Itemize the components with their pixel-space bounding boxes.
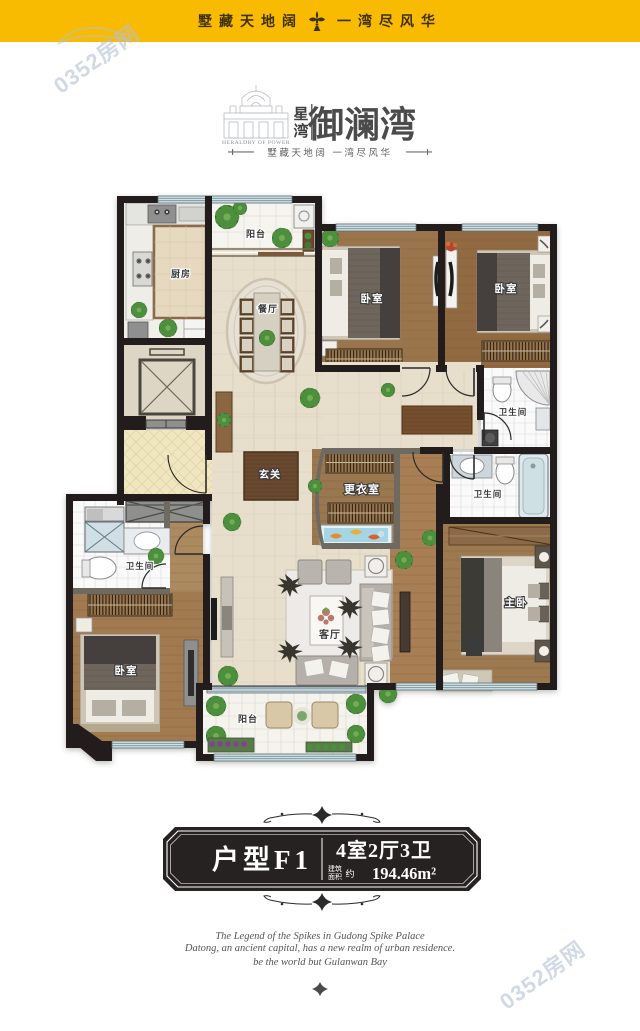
svg-text:户型F1: 户型F1 bbox=[212, 844, 312, 875]
svg-text:The Legend of the Spikes in Gu: The Legend of the Spikes in Gudong Spike… bbox=[215, 931, 425, 942]
svg-text:约: 约 bbox=[345, 868, 354, 879]
svg-text:面积: 面积 bbox=[328, 872, 342, 881]
svg-text:4室2厅3卫: 4室2厅3卫 bbox=[336, 838, 432, 862]
svg-text:Datong, an ancient capital, ha: Datong, an ancient capital, has a new re… bbox=[184, 943, 455, 954]
svg-text:建筑: 建筑 bbox=[328, 864, 342, 873]
svg-text:be the world but Gulanwan Bay: be the world but Gulanwan Bay bbox=[253, 957, 387, 968]
svg-text:194.46m²: 194.46m² bbox=[372, 864, 436, 883]
